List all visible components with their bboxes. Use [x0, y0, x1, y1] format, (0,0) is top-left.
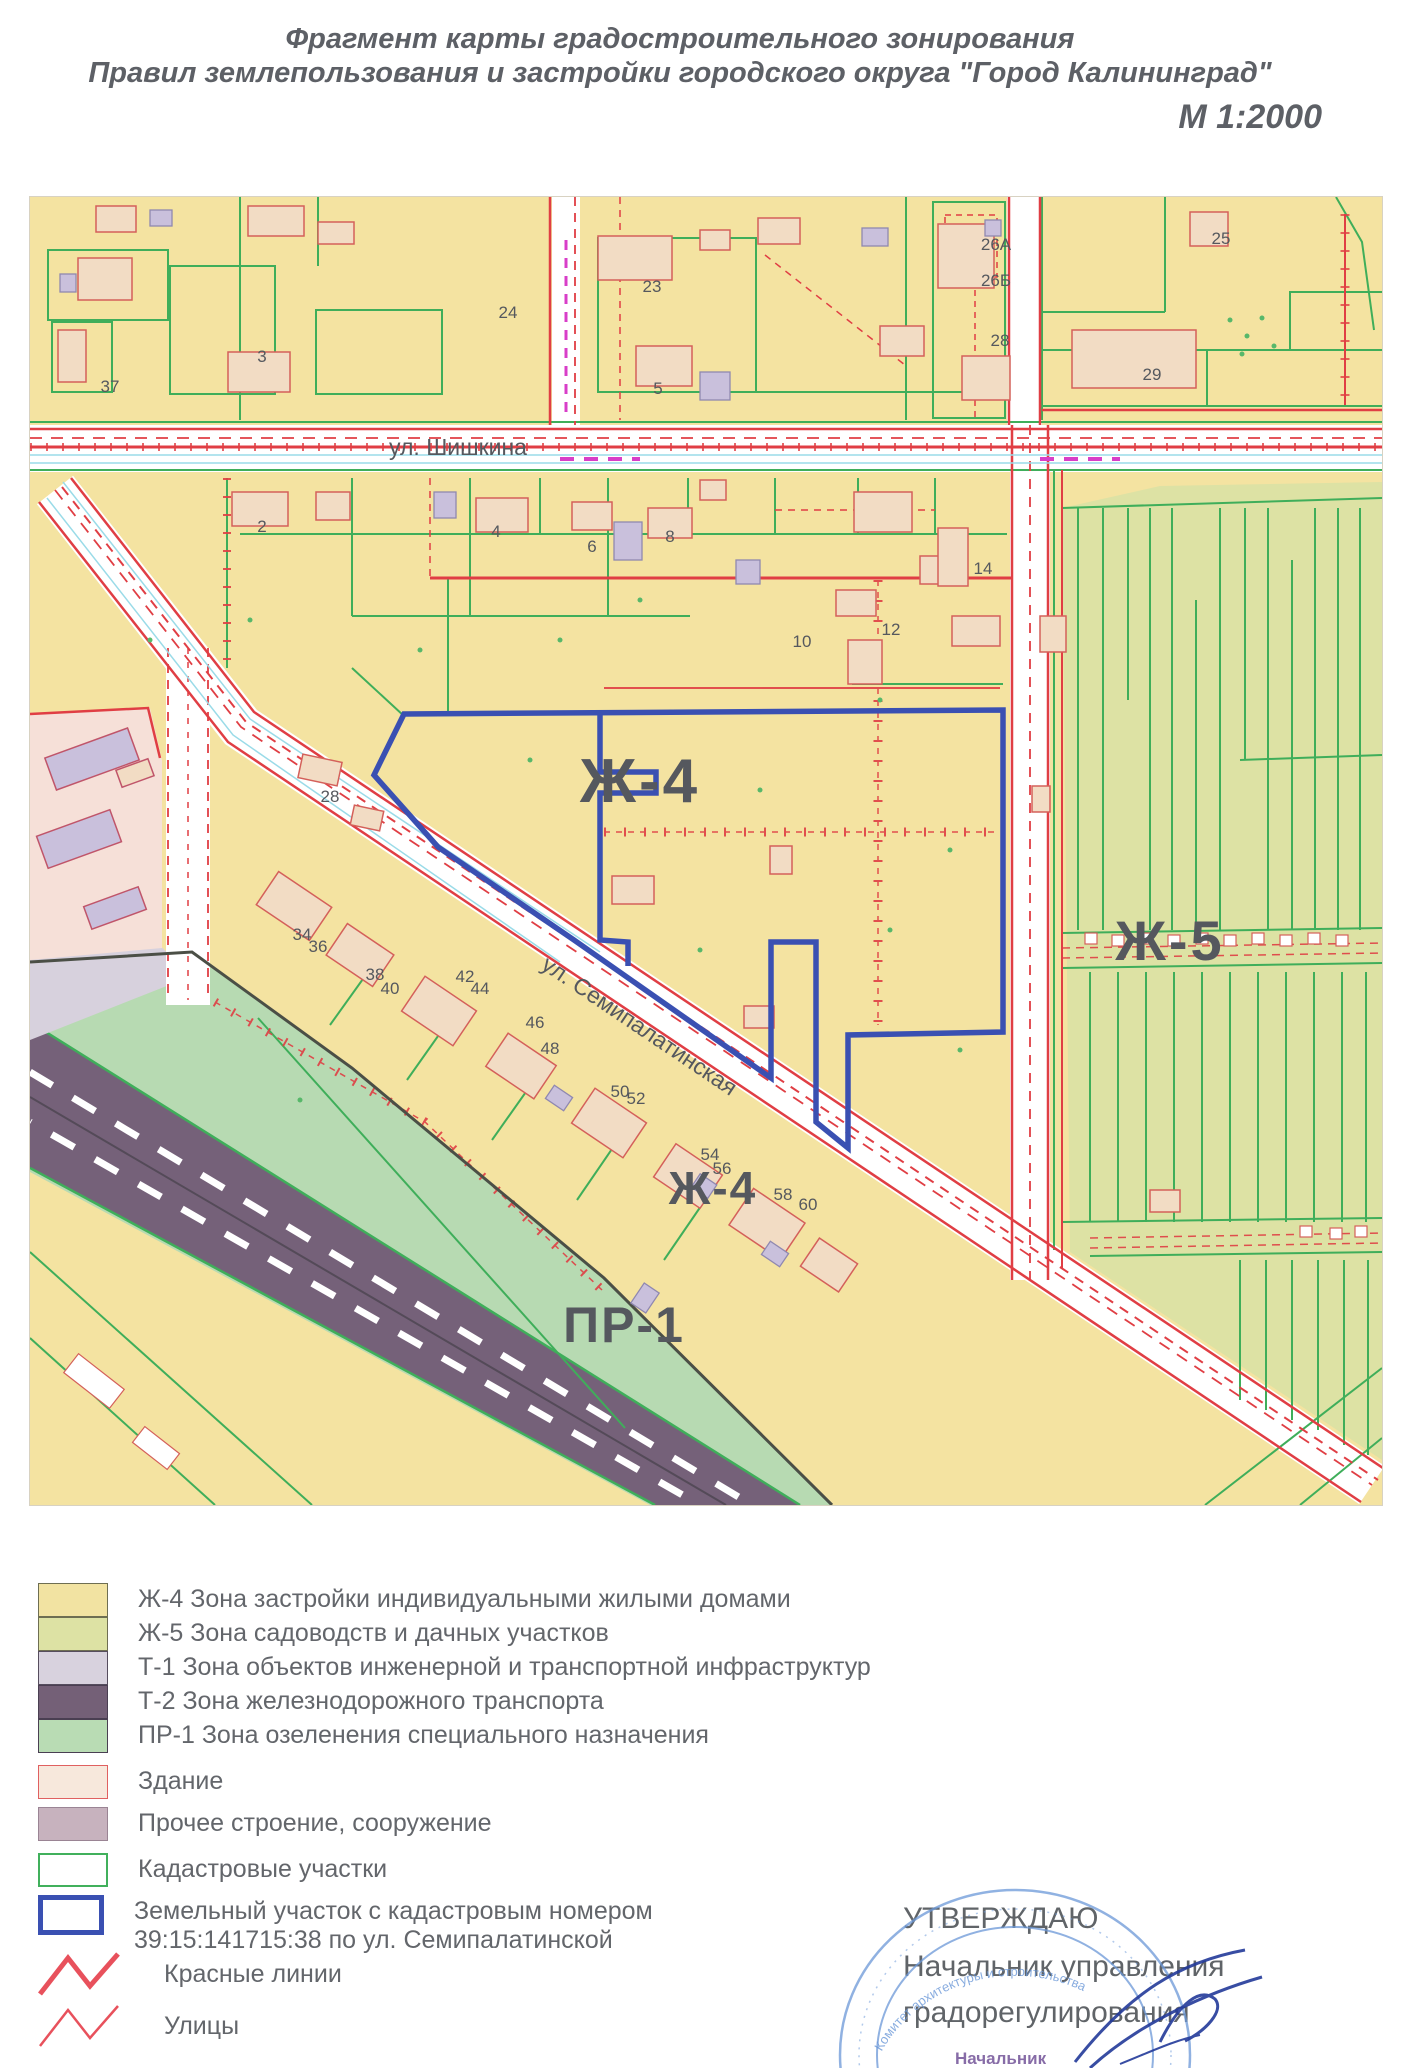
- legend-label: ПР-1 Зона озеленения специального назнач…: [138, 1721, 709, 1750]
- legend-item: ПР-1 Зона озеленения специального назнач…: [38, 1719, 709, 1753]
- legend-label: Здание: [138, 1767, 223, 1796]
- house-number: 26Б: [981, 271, 1011, 290]
- legend-item: Т-1 Зона объектов инженерной и транспорт…: [38, 1651, 871, 1685]
- zone-pink-estate: [30, 708, 162, 960]
- house-number: 58: [774, 1185, 793, 1204]
- house-number: 52: [627, 1089, 646, 1108]
- legend-label: Кадастровые участки: [138, 1855, 387, 1884]
- house-number: 26А: [981, 235, 1012, 254]
- legend-swatch: [38, 1895, 104, 1935]
- zone-label: ПР-1: [563, 1297, 685, 1353]
- zone-label: Ж-5: [1114, 909, 1224, 972]
- zigzag-line-icon: [34, 2000, 134, 2056]
- stamp-note: Начальник: [955, 2049, 1047, 2068]
- house-number: 12: [882, 620, 901, 639]
- legend-label: Красные линии: [164, 1960, 342, 1989]
- house-number: 46: [526, 1013, 545, 1032]
- house-number: 40: [381, 979, 400, 998]
- legend-swatch: [38, 1719, 108, 1753]
- house-number: 4: [491, 522, 500, 541]
- legend-item: Улицы: [38, 2000, 239, 2056]
- legend-swatch: [38, 1807, 108, 1841]
- legend-swatch: [38, 1617, 108, 1651]
- house-number: 60: [799, 1195, 818, 1214]
- house-number: 10: [793, 632, 812, 651]
- legend-item: Красные линии: [38, 1948, 342, 2004]
- legend-label: Т-2 Зона железнодорожного транспорта: [138, 1687, 604, 1716]
- house-number: 6: [587, 537, 596, 556]
- approval-stamp: Комитет архитектуры и строительства Нача…: [790, 1870, 1350, 2068]
- legend-label: Ж-4 Зона застройки индивидуальными жилым…: [138, 1585, 791, 1614]
- legend-item: Ж-5 Зона садоводств и дачных участков: [38, 1617, 609, 1651]
- map-scale-label: М 1:2000: [1178, 98, 1322, 137]
- house-number: 56: [713, 1159, 732, 1178]
- house-number: 23: [643, 277, 662, 296]
- legend-swatch: [38, 1685, 108, 1719]
- signature: [1075, 1950, 1262, 2068]
- house-number: 48: [541, 1039, 560, 1058]
- title-line-2: Правил землепользования и застройки горо…: [0, 56, 1360, 90]
- legend-label: Земельный участок с кадастровым номером …: [134, 1897, 653, 1955]
- legend-item: Т-2 Зона железнодорожного транспорта: [38, 1685, 604, 1719]
- title-line-1: Фрагмент карты градостроительного зониро…: [0, 22, 1360, 56]
- legend-swatch: [38, 1651, 108, 1685]
- street-label: ул. Шишкина: [389, 434, 527, 460]
- house-number: 24: [499, 303, 518, 322]
- house-number: 36: [309, 937, 328, 956]
- legend-item: Земельный участок с кадастровым номером …: [38, 1895, 653, 1955]
- house-number: 37: [101, 377, 120, 396]
- legend-swatch: [38, 1765, 108, 1799]
- house-number: 8: [665, 527, 674, 546]
- zone-label: Ж-4: [579, 747, 700, 816]
- legend-label: Улицы: [164, 2012, 239, 2041]
- legend-item: Ж-4 Зона застройки индивидуальными жилым…: [38, 1583, 791, 1617]
- house-number: 3: [257, 347, 266, 366]
- house-number: 44: [471, 979, 490, 998]
- zoning-map: Ж-4Ж-5Ж-4ПР-1ул. Шишкинаул. Семипалатинс…: [30, 197, 1382, 1505]
- house-number: 28: [321, 787, 340, 806]
- house-number: 14: [974, 559, 993, 578]
- stamp-ring-text: Комитет архитектуры и строительства: [871, 1964, 1089, 2054]
- title-block: Фрагмент карты градостроительного зониро…: [0, 22, 1360, 90]
- legend-item: Прочее строение, сооружение: [38, 1807, 492, 1841]
- page: { "title": { "line1": "Фрагмент карты гр…: [0, 0, 1407, 2068]
- zigzag-line-icon: [34, 1948, 134, 2004]
- house-number: 28: [991, 331, 1010, 350]
- legend-label: Прочее строение, сооружение: [138, 1809, 492, 1838]
- legend-swatch: [38, 1583, 108, 1617]
- house-number: 25: [1212, 229, 1231, 248]
- legend-label: Т-1 Зона объектов инженерной и транспорт…: [138, 1653, 871, 1682]
- legend-item: Кадастровые участки: [38, 1853, 387, 1887]
- legend-swatch: [38, 1853, 108, 1887]
- legend-label: Ж-5 Зона садоводств и дачных участков: [138, 1619, 609, 1648]
- house-number: 2: [257, 517, 266, 536]
- legend-item: Здание: [38, 1765, 223, 1799]
- house-number: 29: [1143, 365, 1162, 384]
- house-number: 5: [653, 379, 662, 398]
